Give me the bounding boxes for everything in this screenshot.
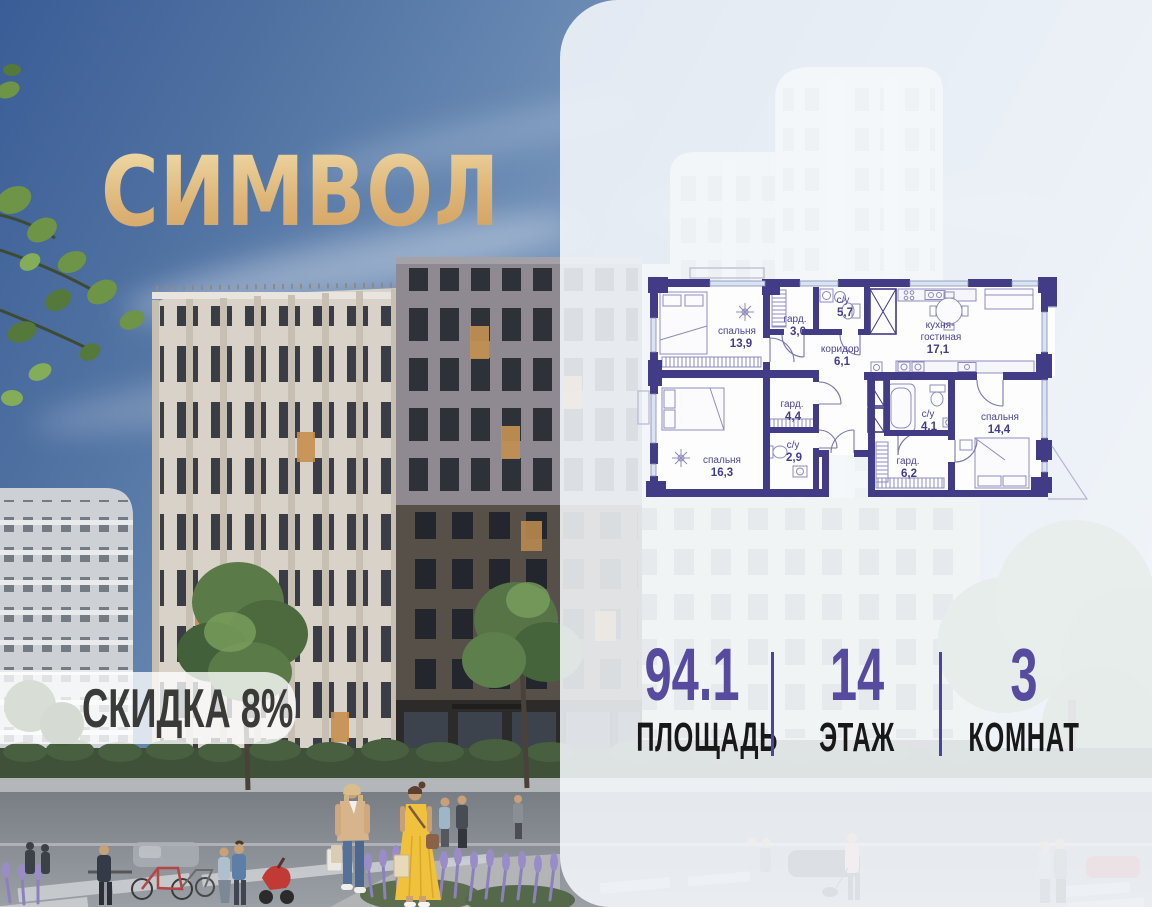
room-label: с/у — [837, 295, 850, 306]
stat-area: 94.1 ПЛОЩАДЬ — [602, 645, 782, 755]
room-label: 4,4 — [785, 411, 802, 423]
stat-area-value: 94.1 — [633, 645, 752, 705]
room-label: 5,7 — [837, 307, 853, 319]
room-label: гард. — [897, 456, 920, 467]
discount-badge: СКИДКА 8% — [0, 672, 296, 744]
room-label: с/у — [787, 440, 800, 451]
room-label: 2,9 — [786, 452, 802, 464]
stat-rooms: 3 КОМНАТ — [934, 645, 1114, 755]
room-label: 13,9 — [730, 338, 752, 350]
room-label: спальня — [718, 326, 756, 337]
logo-simvol: СИМВОЛ — [101, 144, 588, 269]
stat-floor-value: 14 — [798, 645, 917, 705]
room-label: спальня — [981, 412, 1019, 423]
listing-card[interactable]: СИМВОЛ СКИДКА 8% — [0, 0, 1152, 907]
room-label: 16,3 — [711, 467, 733, 479]
room-label: с/у — [922, 409, 935, 420]
stat-floor: 14 ЭТАЖ — [767, 645, 947, 755]
floor-plan: спальня13,9гард.3,0с/у5,7коридор6,1кухня… — [630, 262, 1115, 512]
room-label: 3,0 — [790, 326, 806, 338]
blurred-van — [133, 842, 199, 867]
room-label: гард. — [784, 314, 807, 325]
room-label: 4,1 — [921, 421, 938, 433]
logo-text: СИМВОЛ — [101, 144, 500, 240]
room-label: гард. — [781, 399, 804, 410]
stat-rooms-label: КОМНАТ — [968, 719, 1080, 755]
room-label: 17,1 — [927, 344, 950, 356]
room-label: гостиная — [921, 332, 962, 343]
discount-badge-text: СКИДКА 8% — [82, 676, 293, 740]
room-label: коридор — [821, 344, 860, 355]
room-label: кухня- — [926, 320, 955, 331]
room-label: 6,2 — [901, 468, 917, 480]
stat-floor-label: ЭТАЖ — [801, 719, 913, 755]
room-label: 6,1 — [834, 356, 851, 368]
stat-area-label: ПЛОЩАДЬ — [636, 719, 748, 755]
room-label: 14,4 — [988, 424, 1011, 436]
stat-rooms-value: 3 — [965, 645, 1084, 705]
room-label: спальня — [703, 455, 741, 466]
